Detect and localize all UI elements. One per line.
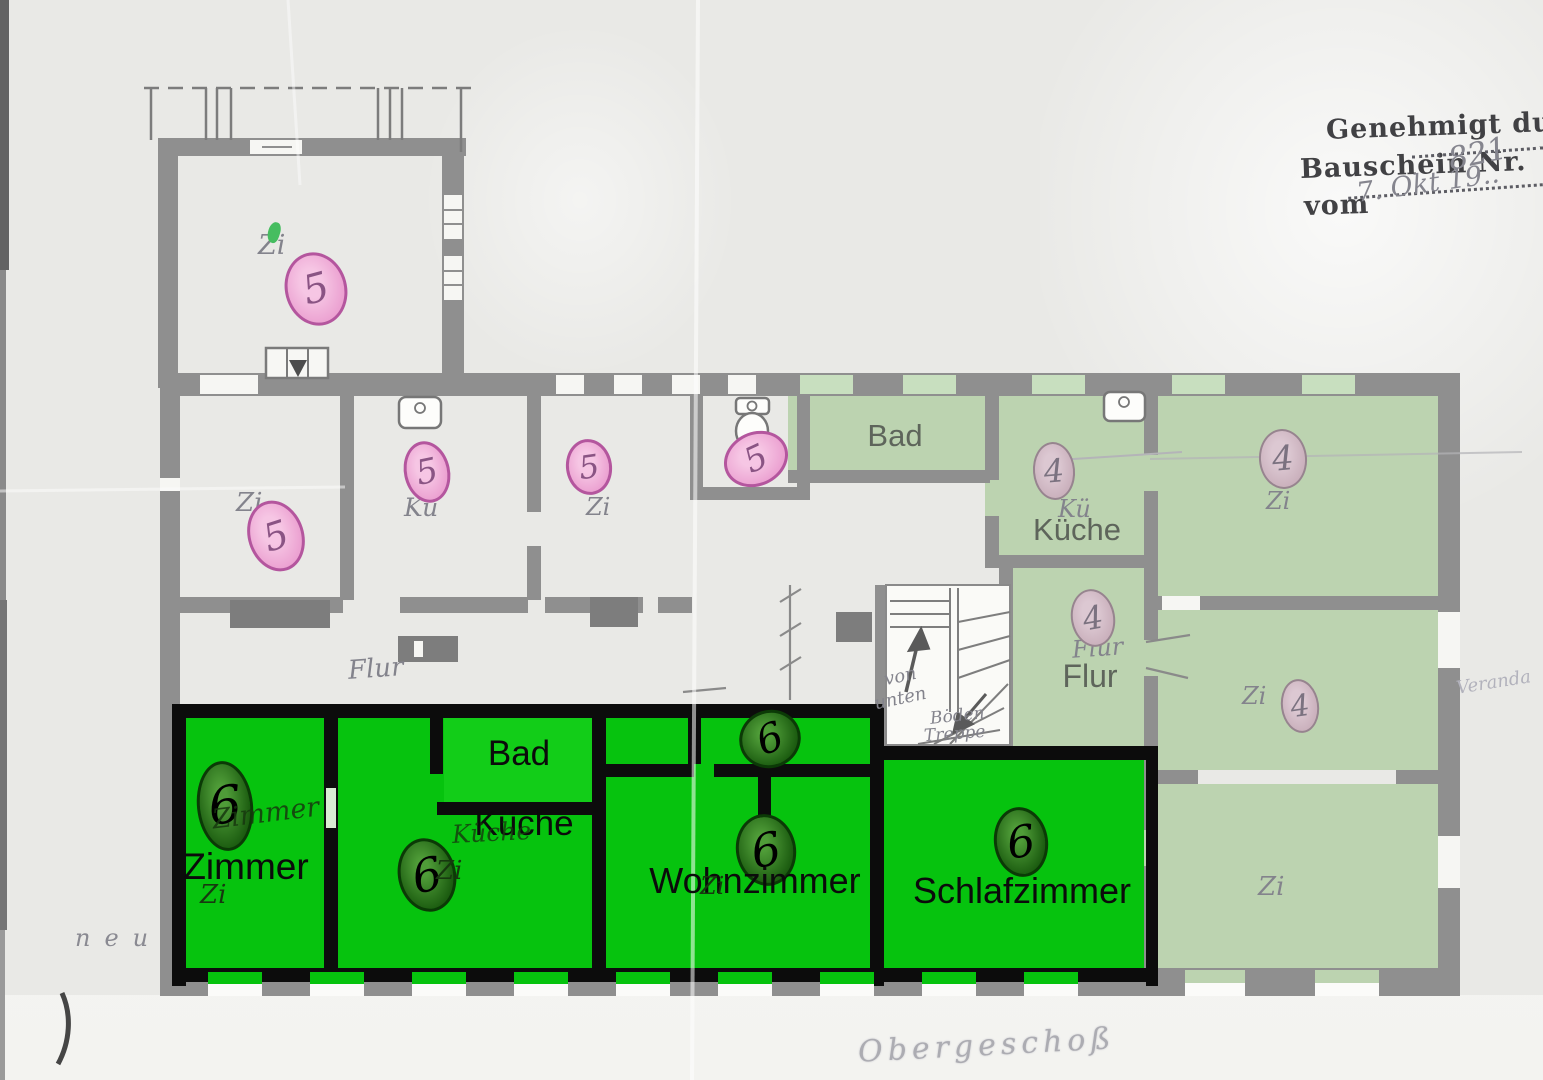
- badge-digit: 4: [1080, 598, 1107, 639]
- fold-creases: [0, 0, 698, 1080]
- corridor-hand-flur: Flur: [347, 652, 404, 686]
- sink-icon-old-kueche: [399, 397, 441, 428]
- badge-digit: 4: [1288, 687, 1312, 724]
- annex-chimney: [266, 348, 328, 378]
- badge-digit: 5: [412, 450, 441, 494]
- room-hand-zi-mid: Zi: [586, 493, 610, 521]
- floorplan-scan: Genehmigt durch Bauschein Nr. 821 vom 7.…: [0, 0, 1543, 1080]
- sink-icon-left-kueche: [1104, 392, 1145, 421]
- room-hand-zi-right-mid: Zi: [1242, 682, 1266, 710]
- badge-digit: 6: [750, 713, 790, 765]
- badge-digit: 5: [576, 447, 601, 487]
- badge-digit: 5: [298, 263, 334, 314]
- room-label-zimmer-new: Zimmer: [168, 848, 324, 887]
- room-hand-zi-right-bottom: Zi: [1258, 872, 1284, 902]
- badge-digit: 4: [1042, 451, 1066, 491]
- room-label-bad-left: Bad: [795, 420, 995, 453]
- room-label-bad-new: Bad: [440, 736, 598, 773]
- room-hand-kue-left: Kü: [1058, 495, 1091, 523]
- annex-porch: [144, 88, 472, 152]
- room-label-flur-left: Flur: [1013, 660, 1167, 694]
- room-label-schlafzimmer-new: Schlafzimmer: [884, 872, 1160, 910]
- badge-digit: 5: [258, 511, 295, 560]
- margin-note-neu: neu: [75, 924, 162, 952]
- room-hand-zi3-new: Zi: [700, 872, 724, 900]
- room-hand-zi-right-top: Zi: [1266, 487, 1290, 515]
- room-hand-zi2-new: Zi: [436, 856, 462, 886]
- badge-digit: 6: [1004, 815, 1039, 869]
- room-hand-zi-new: Zi: [200, 880, 226, 910]
- room-label-wohnzimmer-new: Wohnzimmer: [617, 862, 893, 900]
- badge-digit: 5: [738, 436, 775, 481]
- badge-digit: 4: [1270, 438, 1295, 480]
- stairs-note-treppe: Treppe: [923, 722, 986, 746]
- room-hand-kueche-new: Küche: [451, 816, 532, 849]
